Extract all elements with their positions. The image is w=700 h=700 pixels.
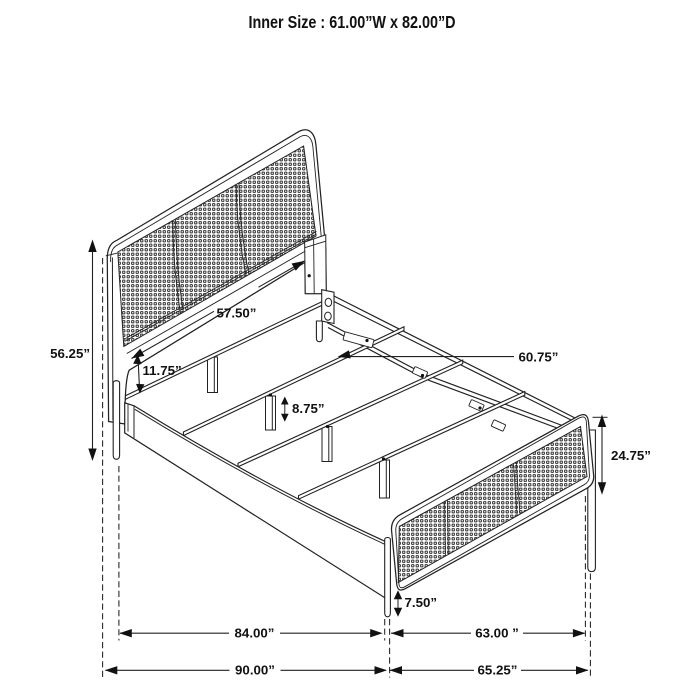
svg-text:Inner Size : 61.00”W x 82.00”D: Inner Size : 61.00”W x 82.00”D: [248, 13, 455, 33]
svg-text:84.00”: 84.00”: [235, 625, 275, 640]
svg-text:57.50”: 57.50”: [217, 306, 257, 321]
svg-text:56.25”: 56.25”: [50, 346, 90, 361]
svg-text:60.75”: 60.75”: [519, 350, 559, 365]
svg-text:65.25”: 65.25”: [478, 662, 518, 677]
svg-text:63.00 ”: 63.00 ”: [475, 625, 519, 640]
svg-text:24.75”: 24.75”: [611, 448, 651, 463]
svg-text:11.75”: 11.75”: [143, 363, 182, 378]
svg-text:7.50”: 7.50”: [405, 595, 438, 610]
svg-text:90.00”: 90.00”: [235, 662, 275, 677]
svg-text:8.75”: 8.75”: [292, 401, 325, 416]
